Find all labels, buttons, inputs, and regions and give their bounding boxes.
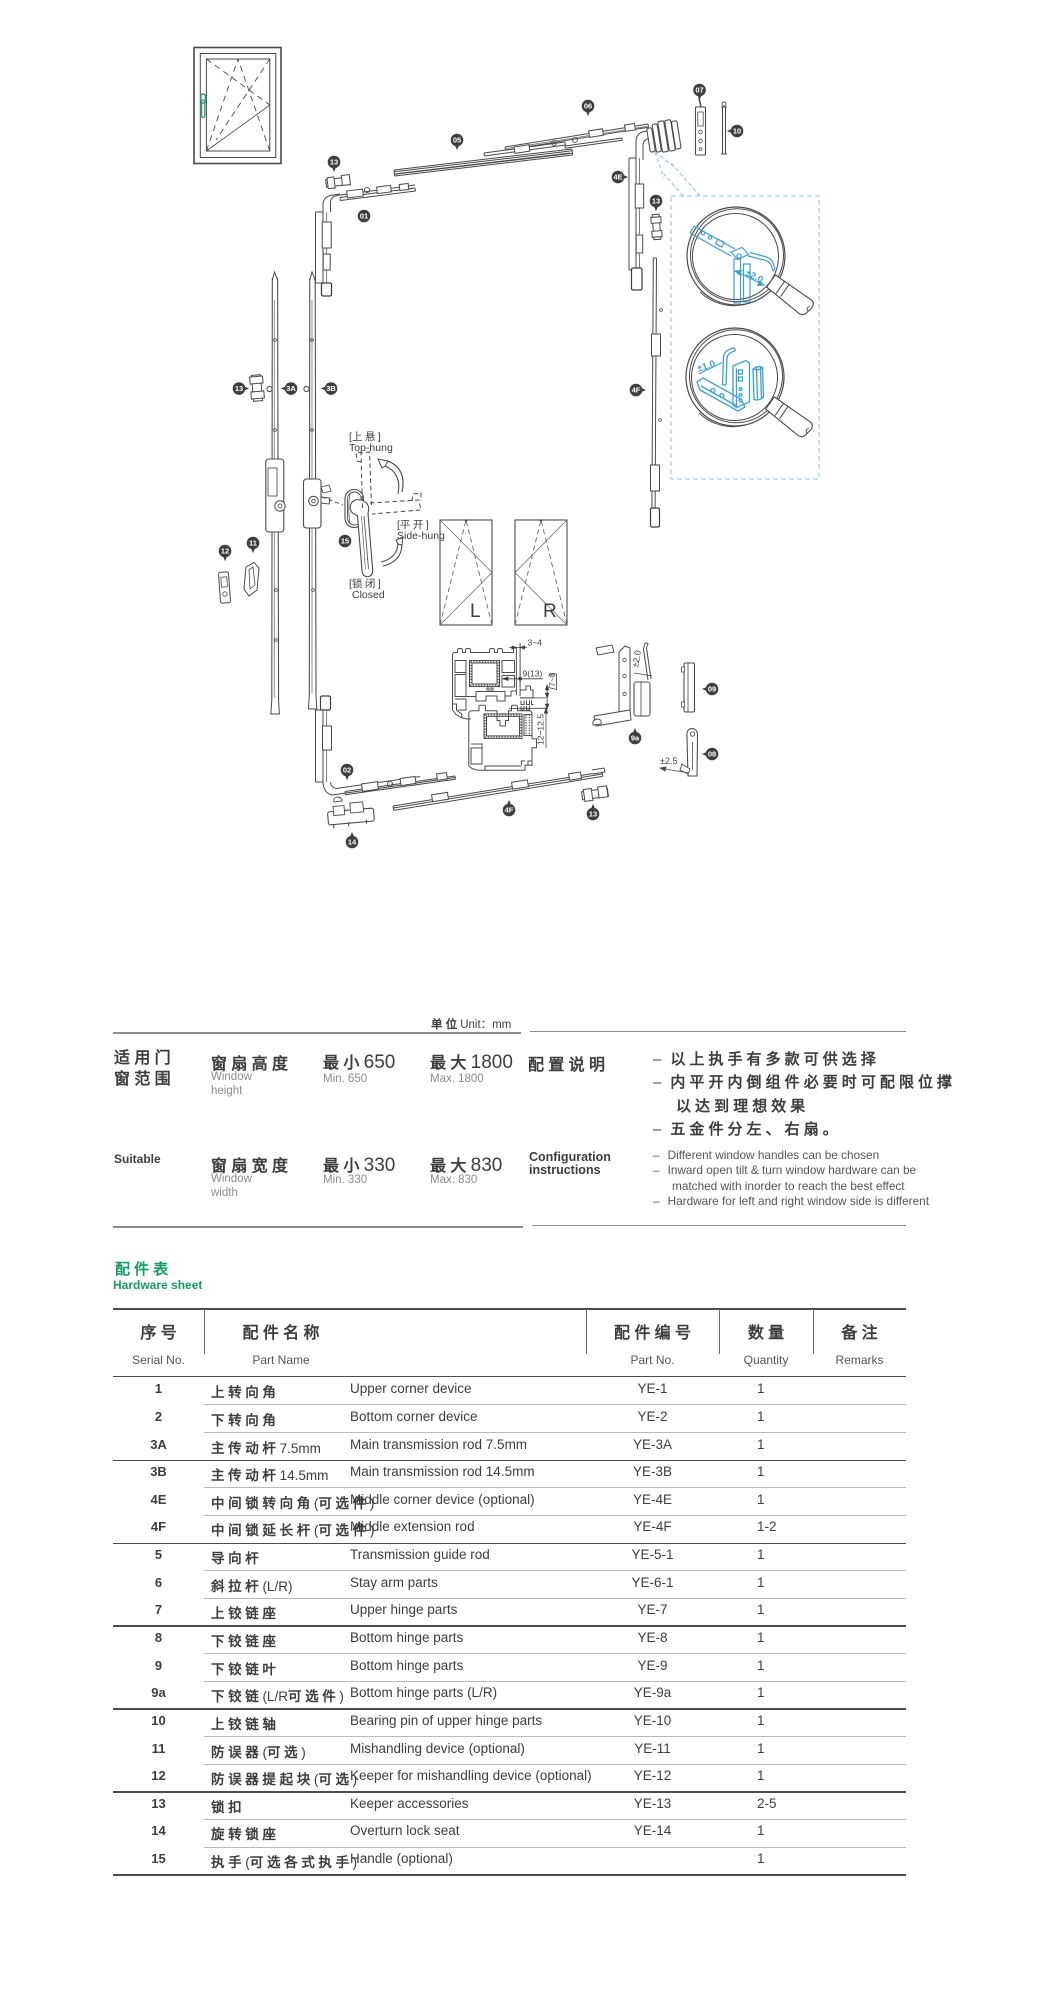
svg-text:3B: 3B [326, 384, 336, 393]
svg-text:05: 05 [453, 136, 461, 145]
svg-text:13: 13 [235, 384, 243, 393]
svg-text:12: 12 [221, 547, 229, 556]
svg-text:4F: 4F [505, 806, 514, 815]
svg-text:9a: 9a [631, 734, 640, 743]
svg-text:±1.0: ±1.0 [696, 359, 717, 375]
svg-text:±2.5: ±2.5 [660, 756, 677, 766]
svg-text:R: R [543, 601, 557, 622]
svg-text:9(13): 9(13) [523, 669, 543, 679]
svg-text:01: 01 [360, 212, 368, 221]
svg-text:15: 15 [341, 537, 349, 546]
svg-text:Closed: Closed [352, 589, 385, 601]
svg-text:3A: 3A [286, 384, 296, 393]
svg-text:4F: 4F [632, 386, 641, 395]
svg-text:L: L [470, 601, 481, 622]
svg-text:11: 11 [249, 539, 257, 548]
svg-text:12~12.5: 12~12.5 [536, 714, 546, 745]
svg-text:3~4: 3~4 [528, 638, 543, 648]
svg-text:13: 13 [652, 197, 660, 206]
svg-text:02: 02 [343, 766, 351, 775]
svg-text:14: 14 [348, 838, 357, 847]
svg-text:10: 10 [733, 127, 741, 136]
svg-text:±2.0: ±2.0 [630, 649, 643, 668]
svg-text:Top-hung: Top-hung [349, 442, 393, 454]
svg-text:Side-hung: Side-hung [397, 530, 445, 542]
svg-text:13: 13 [330, 158, 338, 167]
svg-text:13: 13 [589, 810, 597, 819]
svg-text:08: 08 [708, 750, 716, 759]
svg-text:07: 07 [695, 86, 703, 95]
svg-text:4E: 4E [613, 173, 622, 182]
svg-text:06: 06 [584, 102, 592, 111]
svg-text:09: 09 [708, 685, 716, 694]
svg-text:7~8: 7~8 [547, 672, 557, 687]
